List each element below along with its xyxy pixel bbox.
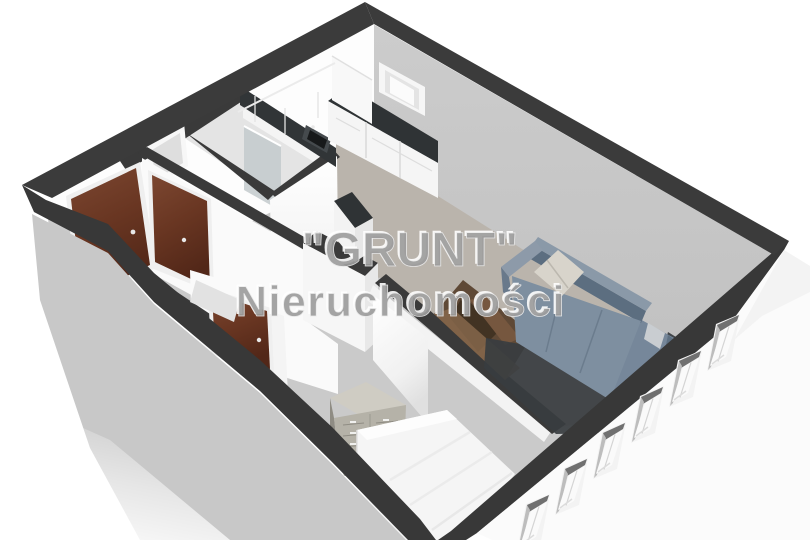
svg-text:"GRUNT": "GRUNT" — [302, 224, 518, 277]
svg-text:Nieruchomości: Nieruchomości — [236, 278, 566, 326]
